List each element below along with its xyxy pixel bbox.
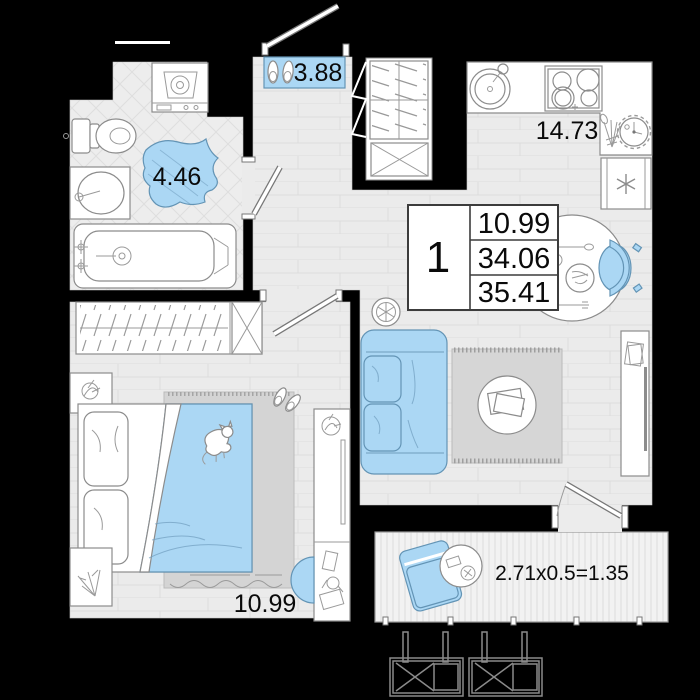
floor-plan-svg: 3.88 4.46 14.73 10.99 2.71x0.5=1.35 1 10… (0, 0, 700, 700)
side-table (372, 298, 400, 326)
bed (78, 404, 252, 572)
desk (314, 409, 350, 621)
rooms-count-value: 1 (426, 233, 450, 282)
hall-area-label: 3.88 (294, 59, 343, 87)
tv-console (621, 331, 649, 476)
bedroom-wardrobe (76, 302, 262, 354)
floor-plan-canvas: 3.88 4.46 14.73 10.99 2.71x0.5=1.35 1 10… (0, 0, 700, 700)
balcony-dimension-label: 2.71x0.5=1.35 (495, 562, 629, 585)
apartment-area-value: 34.06 (478, 243, 551, 275)
living-area-value: 10.99 (478, 208, 551, 240)
coffee-table (478, 376, 536, 434)
bathroom-area-label: 4.46 (153, 163, 202, 191)
balcony-table (440, 545, 482, 587)
bathtub (74, 224, 236, 288)
nightstand-bottom (70, 548, 112, 606)
info-table: 1 10.99 34.06 35.41 (408, 205, 558, 310)
bathroom-sink (70, 167, 130, 219)
kitchen-living-area-label: 14.73 (536, 117, 599, 145)
total-area-value: 35.41 (478, 277, 551, 309)
washing-machine (152, 63, 208, 112)
sofa (361, 330, 447, 474)
tv (644, 367, 647, 451)
vent-line (115, 41, 170, 44)
fridge (601, 158, 651, 209)
bedroom-area-label: 10.99 (234, 590, 297, 618)
